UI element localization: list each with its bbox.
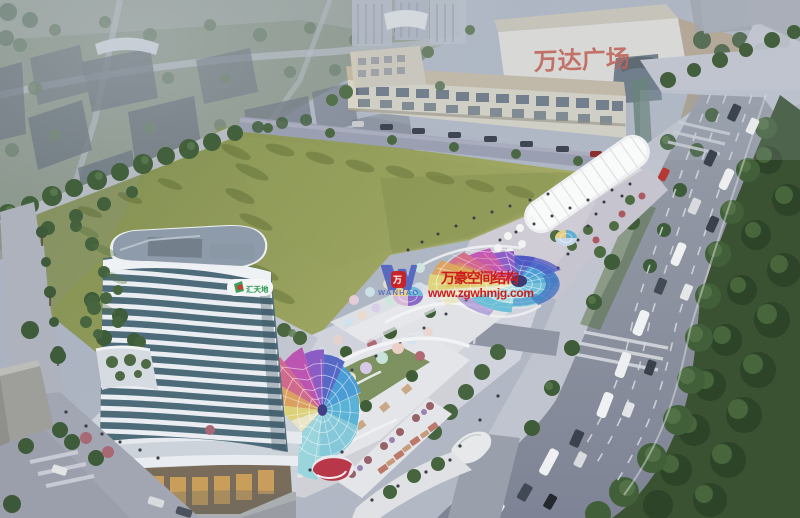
svg-text:www.zgwhmjg.com: www.zgwhmjg.com <box>427 286 534 300</box>
svg-text:WANHAO: WANHAO <box>378 288 419 297</box>
svg-text:汇天地: 汇天地 <box>246 284 269 294</box>
svg-text:万豪空间结构: 万豪空间结构 <box>440 270 519 286</box>
svg-text:万: 万 <box>392 275 402 285</box>
